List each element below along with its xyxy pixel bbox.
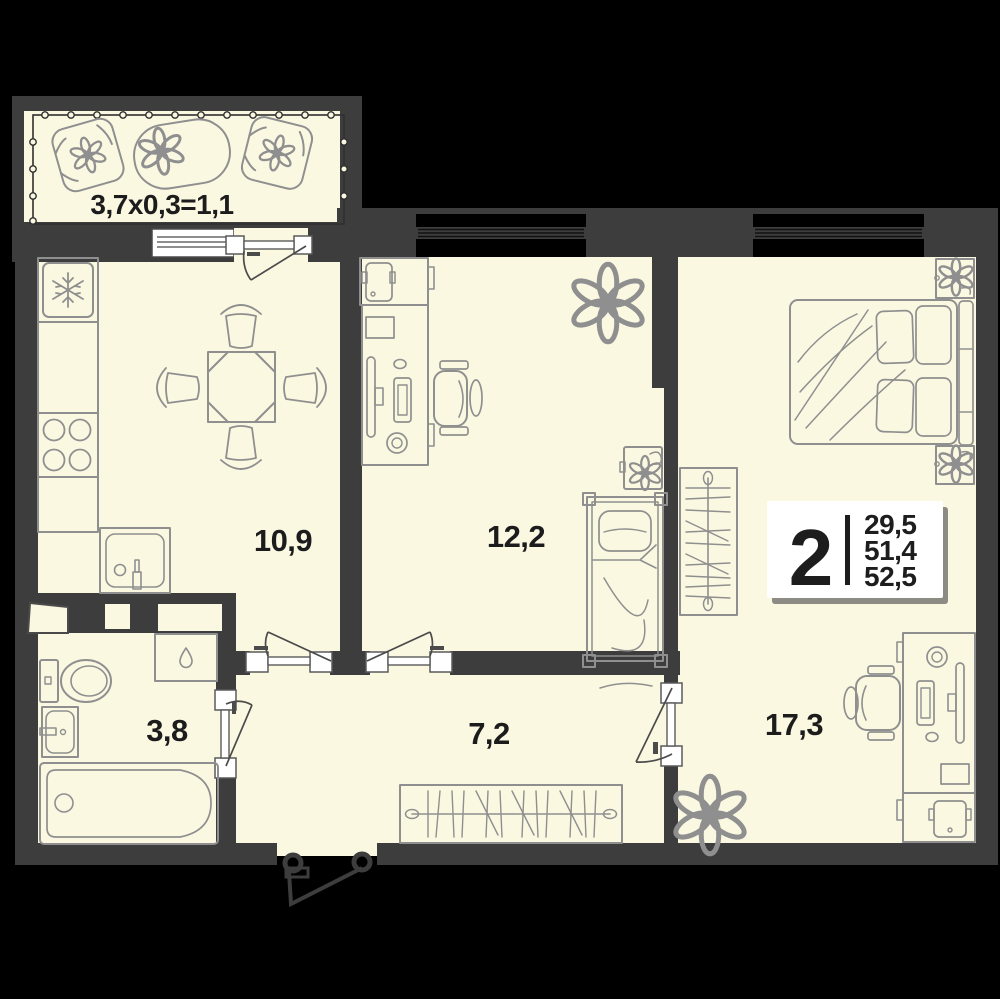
bathroom-shelf <box>28 603 68 633</box>
bath-hall-wall-upper <box>216 630 236 694</box>
vent-niche-large <box>158 604 222 631</box>
living-bedroom-wall-upper <box>652 208 678 388</box>
bottom-wall-right <box>377 843 980 865</box>
balcony-top-wall <box>12 96 352 111</box>
floor-plan-page: 3,7x0,3=1,1 10,9 12,2 3,8 7,2 17,3 2 29,… <box>0 0 1000 999</box>
vent-niche-small <box>105 604 130 629</box>
vent-niches <box>105 604 222 631</box>
badge-rooms-count: 2 <box>789 513 832 602</box>
hall-top-wall-c <box>450 651 680 675</box>
badge-divider <box>845 515 850 585</box>
kitchen-area-label: 10,9 <box>254 523 313 558</box>
bottom-wall-left <box>15 843 277 865</box>
left-wall <box>15 228 38 865</box>
living-area-label: 12,2 <box>487 519 545 554</box>
water-heater <box>155 634 217 681</box>
kitchen-living-wall <box>340 240 362 675</box>
balcony-area-label: 3,7x0,3=1,1 <box>90 189 233 220</box>
bedroom-area-label: 17,3 <box>765 707 824 742</box>
bathroom-area-label: 3,8 <box>146 713 188 748</box>
info-badge: 2 29,5 51,4 52,5 <box>767 501 948 604</box>
hall-top-wall-b <box>330 651 370 675</box>
badge-area-total: 52,5 <box>864 561 917 592</box>
hallway-area-label: 7,2 <box>468 716 510 751</box>
balcony-left-wall <box>12 96 24 242</box>
floor-plan: 3,7x0,3=1,1 10,9 12,2 3,8 7,2 17,3 2 29,… <box>0 0 1000 999</box>
kitchen-window-unit <box>152 229 234 257</box>
right-wall <box>976 208 998 865</box>
